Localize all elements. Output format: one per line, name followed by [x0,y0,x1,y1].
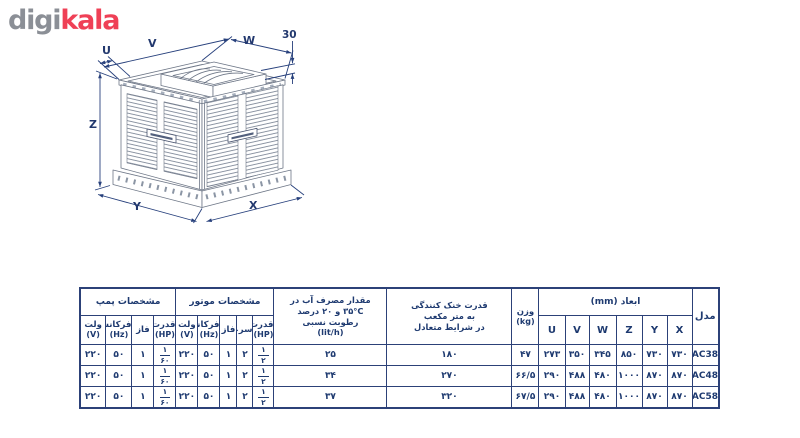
extension-line [291,185,304,195]
dim-x-cell: ۷۳۰ [667,345,692,366]
spec-table-container: مدل ابعاد (mm) وزن (kg) قدرت خنک کنندگی … [82,287,720,409]
motor-speed-cell: ۲ [237,345,253,366]
dim-z-cell: ۱۰۰۰ [616,387,642,409]
header-pump-frequency: فرکانس (Hz) [106,316,132,345]
motor-speed-cell: ۲ [237,366,253,387]
motor-power-cell: ۱۲ [253,366,274,387]
dim-y-cell: ۸۷۰ [642,366,667,387]
header-motor-phase: فاز [220,316,237,345]
pump-power-cell: ۱۶۰ [154,345,176,366]
water-cell: ۲۵ [274,345,387,366]
motor-frequency-cell: ۵۰ [198,387,220,409]
pump-power-cell: ۱۶۰ [154,387,176,409]
pump-frequency-cell: ۵۰ [106,345,132,366]
header-dim-z: Z [616,316,642,345]
header-motor-power: قدرت (HP) [253,316,274,345]
weight-label: وزن [512,307,538,317]
motor-phase-cell: ۱ [220,366,237,387]
table-row-ac48: AC48 ۸۷۰ ۸۷۰ ۱۰۰۰ ۴۸۰ ۴۸۸ ۲۹۰ ۶۶/۵ ۲۷۰ ۳… [80,366,719,387]
pump-frequency-cell: ۵۰ [106,366,132,387]
motor-frequency-cell: ۵۰ [198,366,220,387]
cooler-body [113,61,291,208]
header-dim-u: U [539,316,565,345]
cooling-cell: ۱۸۰ [387,345,512,366]
motor-power-cell: ۱۲ [253,387,274,409]
cooling-cell: ۳۲۰ [387,387,512,409]
header-pump-phase: فاز [132,316,154,345]
dim-y-cell: ۸۷۰ [642,387,667,409]
dim-z-cell: ۸۵۰ [616,345,642,366]
weight-cell: ۶۶/۵ [512,366,539,387]
header-motor-group: مشخصات موتور [176,288,274,316]
header-motor-speed: سرعت [237,316,253,345]
model-cell: AC58 [692,387,719,409]
spec-table: مدل ابعاد (mm) وزن (kg) قدرت خنک کنندگی … [79,287,720,409]
model-cell: AC38 [692,345,719,366]
dim-u-cell: ۲۹۰ [539,387,565,409]
dim-v-cell: ۴۸۸ [565,366,589,387]
header-dim-x: X [667,316,692,345]
dim-w-cell: ۴۸۰ [589,366,616,387]
extension-line [108,57,130,77]
dim-u-cell: ۲۷۳ [539,345,565,366]
logo-digi-text: digi [8,5,60,36]
header-dimensions-group: ابعاد (mm) [539,288,692,316]
dim-label-z: Z [89,118,97,131]
product-spec-image: digikala [0,0,800,438]
header-water-consumption: مقدار مصرف آب در ۳۵°C و ۲۰ درصد رطوبت نس… [274,288,387,345]
header-weight: وزن (kg) [512,288,539,345]
header-pump-power: قدرت (HP) [154,316,176,345]
dim-label-x: X [249,199,258,212]
water-cell: ۳۷ [274,387,387,409]
header-cooling-capacity: قدرت خنک کنندگی به متر مکعب در شرایط متع… [387,288,512,345]
pump-voltage-cell: ۲۲۰ [80,345,106,366]
weight-cell: ۶۷/۵ [512,387,539,409]
dim-w-cell: ۳۴۵ [589,345,616,366]
header-pump-voltage: ولت (V) [80,316,106,345]
dim-x-cell: ۸۷۰ [667,387,692,409]
header-motor-voltage: ولت (V) [176,316,198,345]
header-pump-group: مشخصات پمپ [80,288,176,316]
pump-voltage-cell: ۲۲۰ [80,387,106,409]
motor-phase-cell: ۱ [220,345,237,366]
water-cell: ۳۴ [274,366,387,387]
dim-x-cell: ۸۷۰ [667,366,692,387]
motor-speed-cell: ۲ [237,387,253,409]
motor-voltage-cell: ۲۲۰ [176,387,198,409]
model-cell: AC48 [692,366,719,387]
header-dim-w: W [589,316,616,345]
pump-phase-cell: ۱ [132,387,154,409]
extension-line [194,209,203,224]
motor-voltage-cell: ۲۲۰ [176,345,198,366]
pump-phase-cell: ۱ [132,366,154,387]
header-dim-v: V [565,316,589,345]
pump-voltage-cell: ۲۲۰ [80,366,106,387]
dim-label-30: 30 [282,29,297,41]
dim-u-cell: ۲۹۰ [539,366,565,387]
weight-unit: (kg) [512,317,538,327]
header-model: مدل [692,288,719,345]
dim-v-cell: ۳۵۰ [565,345,589,366]
motor-frequency-cell: ۵۰ [198,345,220,366]
motor-power-cell: ۱۲ [253,345,274,366]
table-row-ac58: AC58 ۸۷۰ ۸۷۰ ۱۰۰۰ ۴۸۰ ۴۸۸ ۲۹۰ ۶۷/۵ ۳۲۰ ۳… [80,387,719,409]
cooler-isometric-drawing: V W U 30 Z Y X [85,14,313,242]
dim-w-cell: ۴۸۰ [589,387,616,409]
extension-line [261,64,295,71]
pump-phase-cell: ۱ [132,345,154,366]
dim-label-u: U [102,44,111,57]
cooling-cell: ۲۷۰ [387,366,512,387]
dimension-line-u [100,61,113,64]
table-row-ac38: AC38 ۷۳۰ ۷۳۰ ۸۵۰ ۳۴۵ ۳۵۰ ۲۷۳ ۴۷ ۱۸۰ ۲۵ ۱… [80,345,719,366]
dim-v-cell: ۴۸۸ [565,387,589,409]
weight-cell: ۴۷ [512,345,539,366]
pump-frequency-cell: ۵۰ [106,387,132,409]
dim-label-v: V [148,37,157,50]
dim-label-w: W [243,34,255,47]
header-motor-frequency: فرکانس (Hz) [198,316,220,345]
extension-line [202,37,232,61]
dim-label-y: Y [132,200,142,213]
dim-z-cell: ۱۰۰۰ [616,366,642,387]
motor-voltage-cell: ۲۲۰ [176,366,198,387]
header-dim-y: Y [642,316,667,345]
pump-power-cell: ۱۶۰ [154,366,176,387]
motor-phase-cell: ۱ [220,387,237,409]
dimension-line-w [231,40,292,54]
dim-y-cell: ۷۳۰ [642,345,667,366]
extension-line [95,186,110,191]
